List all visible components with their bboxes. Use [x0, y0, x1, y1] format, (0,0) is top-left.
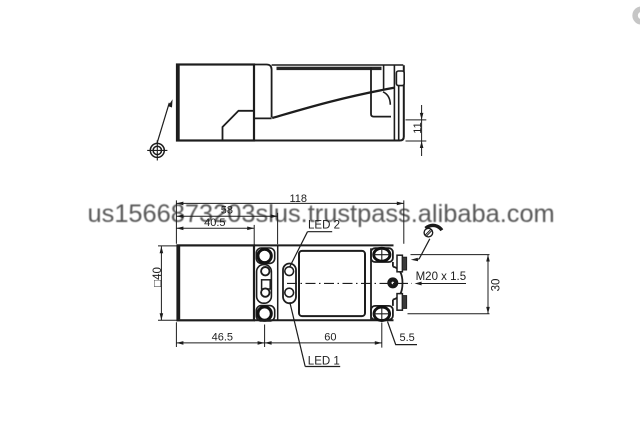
svg-text:LED 1: LED 1 — [308, 356, 340, 368]
svg-text:30: 30 — [490, 279, 502, 292]
svg-text:M20 x 1.5: M20 x 1.5 — [416, 271, 467, 283]
svg-text:46.5: 46.5 — [212, 331, 233, 343]
svg-text:11: 11 — [412, 122, 424, 133]
svg-text:□40: □40 — [152, 267, 164, 287]
svg-text:5.5: 5.5 — [400, 332, 415, 344]
svg-text:60: 60 — [324, 331, 336, 343]
svg-text:us1566873203slus.trustpass.ali: us1566873203slus.trustpass.alibaba.com — [88, 200, 555, 228]
